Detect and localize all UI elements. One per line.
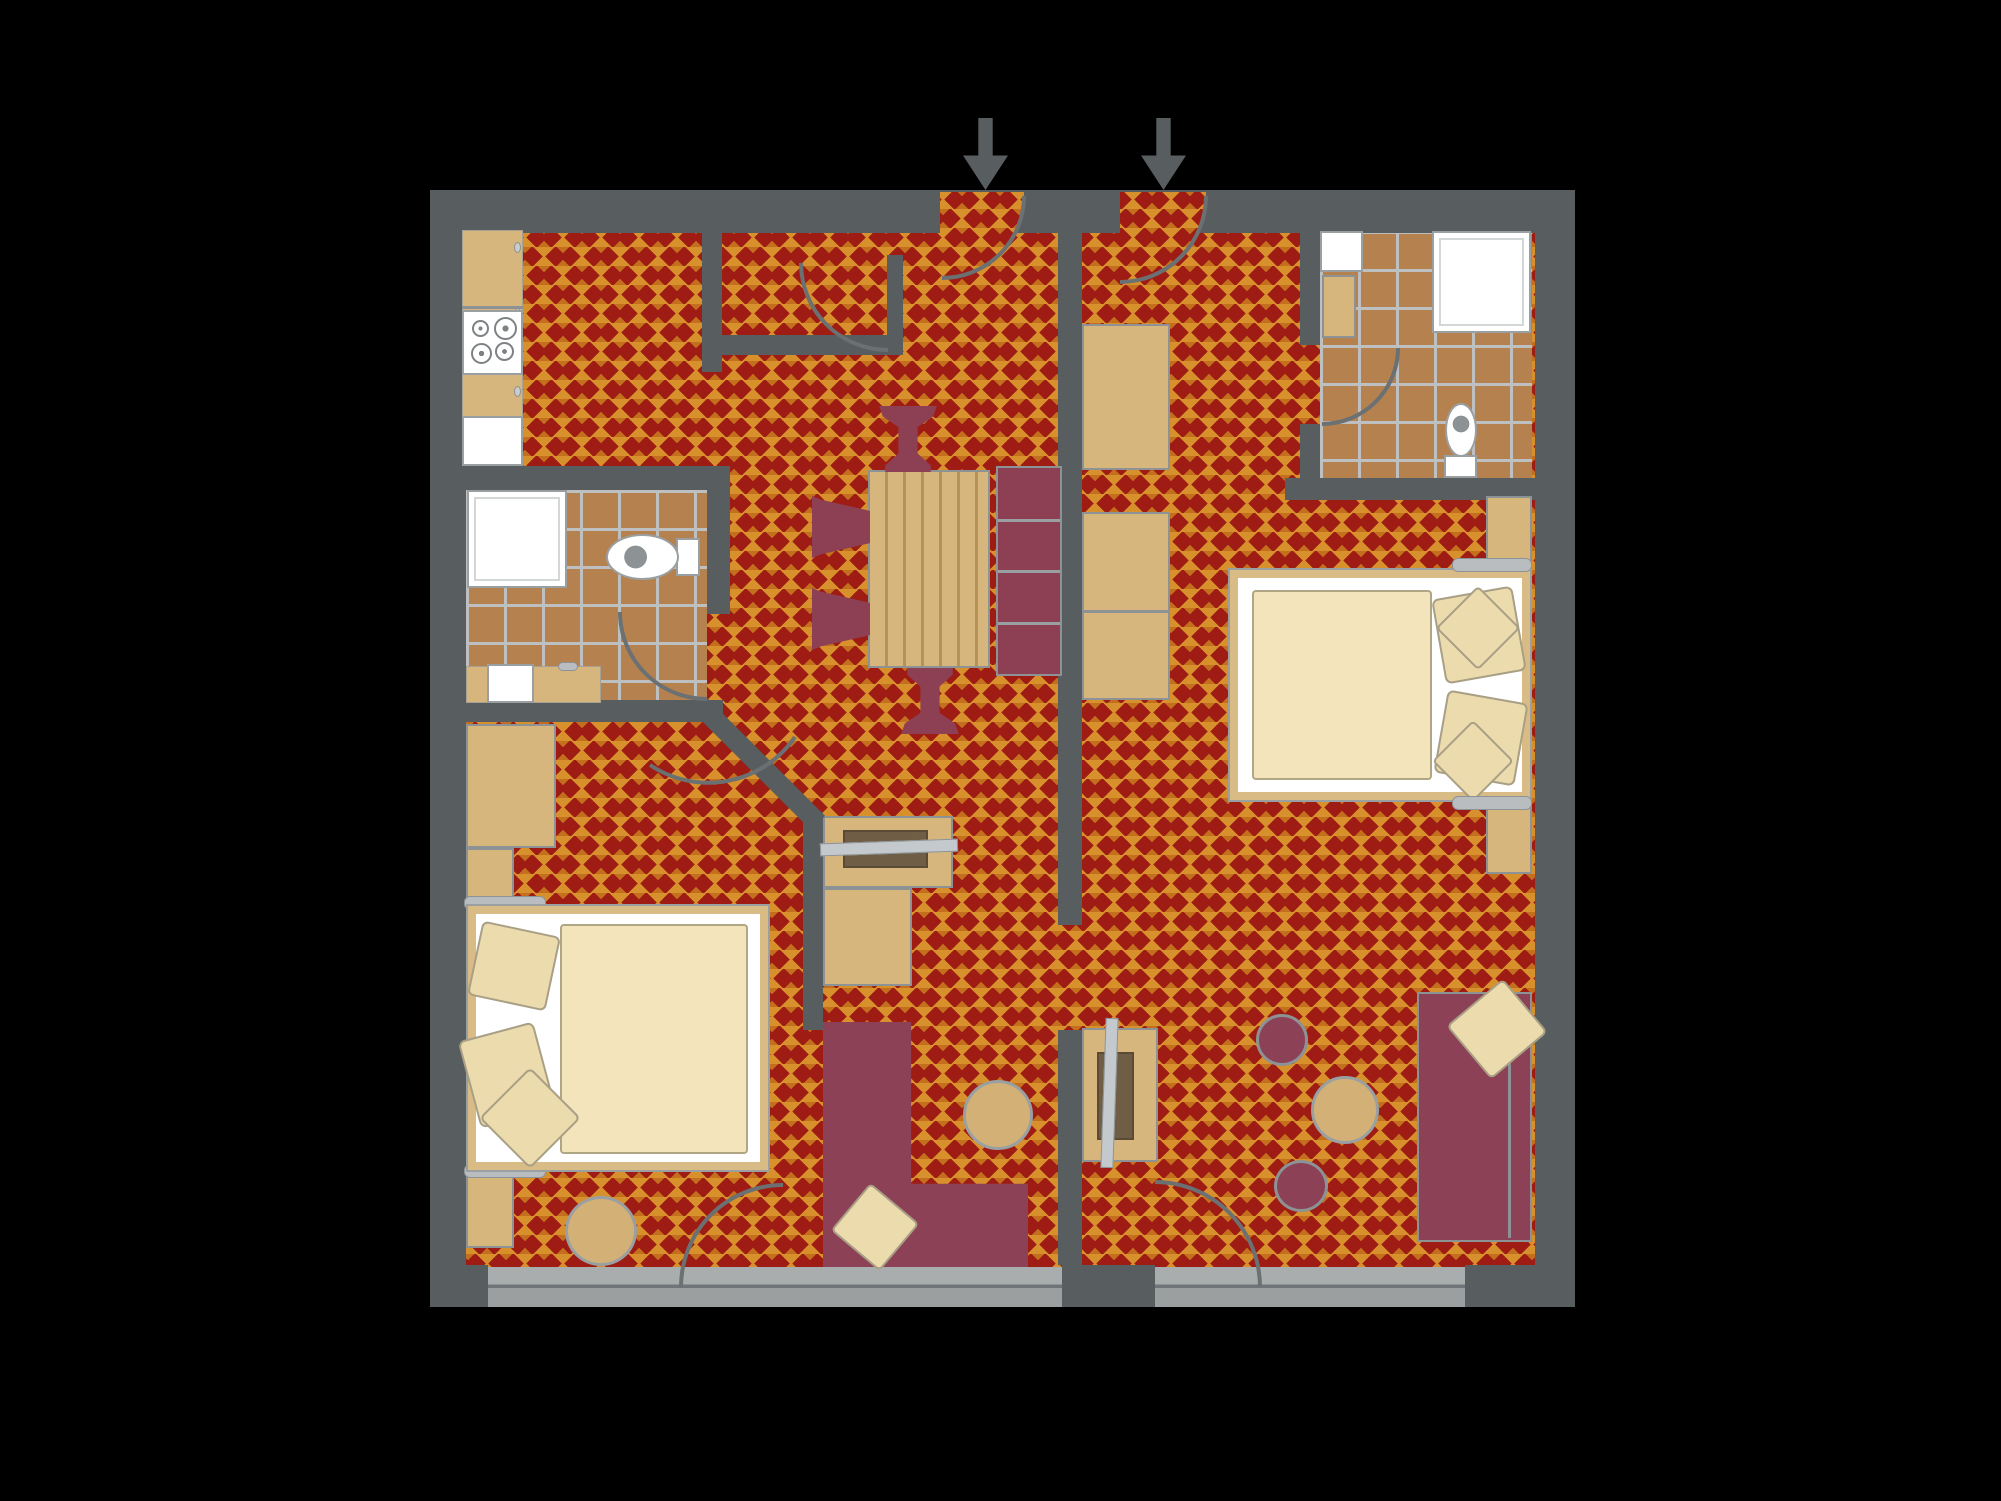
balcony-door-left-arc: [681, 1185, 783, 1287]
entrance-arrow: [1141, 118, 1186, 190]
closet-door-arc: [801, 263, 888, 350]
wall-bedroom-diagonal: [700, 705, 818, 823]
entry-door-left-arc: [942, 196, 1024, 278]
floor-plan-canvas: [0, 0, 2001, 1501]
bathroom-left-door-arc: [620, 612, 707, 699]
entrance-arrow: [963, 118, 1008, 190]
door-swing-overlay: [430, 190, 1575, 1367]
balcony-door-right-arc: [1155, 1182, 1260, 1287]
bathroom-right-door-arc: [1322, 348, 1398, 424]
entry-door-right-arc: [1120, 196, 1206, 282]
apartment-plan: [430, 190, 1575, 1307]
